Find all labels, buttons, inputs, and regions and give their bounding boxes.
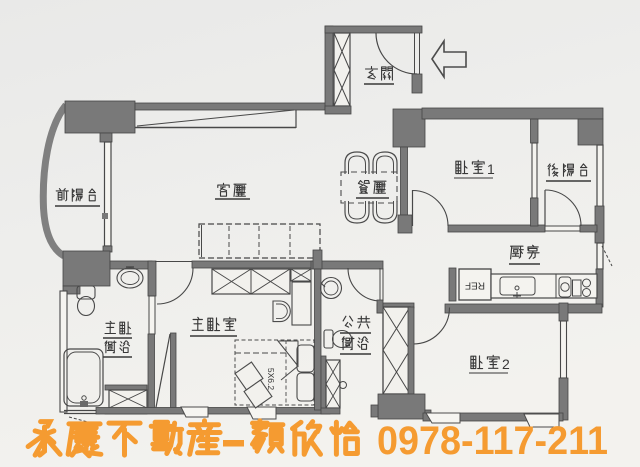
svg-text:5X6.2: 5X6.2 [266,368,276,390]
svg-text:1: 1 [487,161,495,177]
svg-text:0978-117-211: 0978-117-211 [377,419,608,463]
svg-text:2: 2 [502,356,510,372]
svg-text:REF: REF [465,279,485,290]
